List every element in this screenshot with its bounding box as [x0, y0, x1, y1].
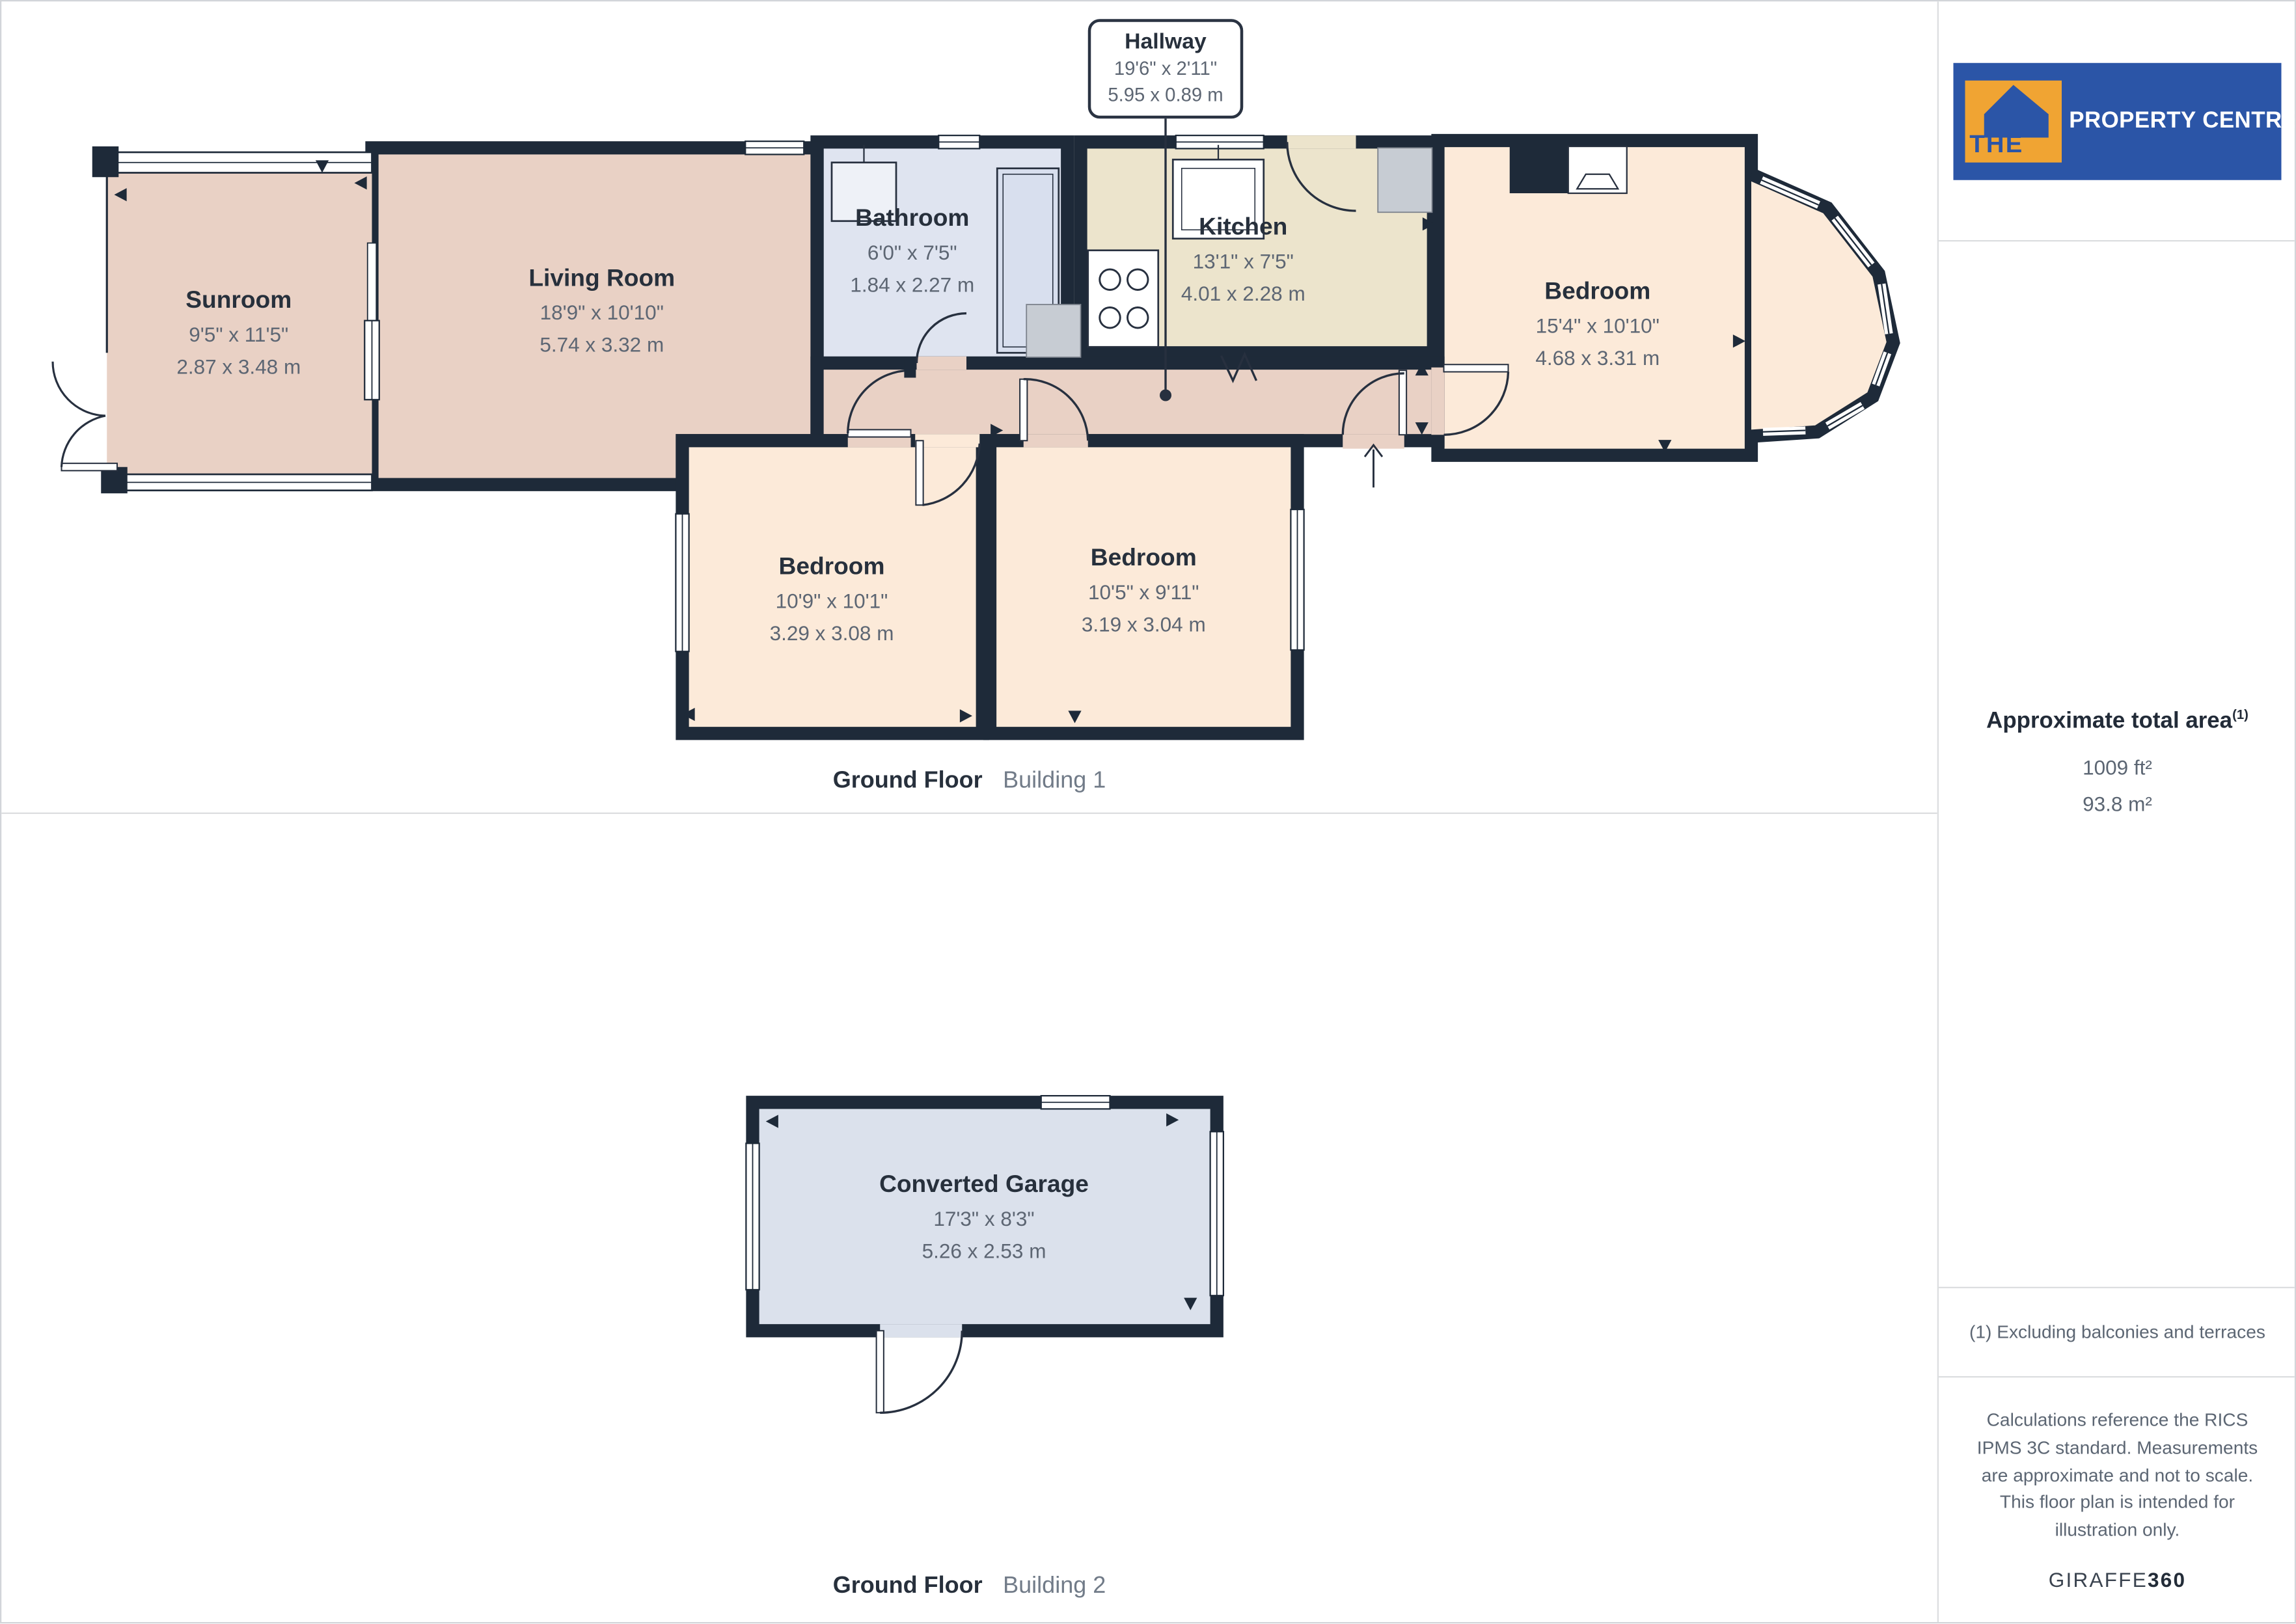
area-title-text: Approximate total area: [1986, 709, 2232, 733]
room-dim-metric: 4.68 x 3.31 m: [1535, 343, 1660, 375]
fridge-icon: [1378, 148, 1432, 212]
room-name: Sunroom: [176, 288, 301, 316]
brand-text: GIRAFFE: [2049, 1567, 2148, 1591]
total-area-cell: Approximate total area(1) 1009 ft² 93.8 …: [1939, 241, 2296, 1288]
hob-icon: [1088, 250, 1158, 347]
giraffe360-brand: GIRAFFE360: [1939, 1567, 2296, 1591]
disclaimer-cell: Calculations reference the RICS IPMS 3C …: [1939, 1377, 2296, 1591]
section-divider: [1, 813, 1937, 814]
room-dim-imperial: 17'3" x 8'3": [879, 1204, 1089, 1236]
area-title: Approximate total area(1): [1939, 707, 2296, 735]
room-name: Bathroom: [850, 206, 974, 234]
room-dim-imperial: 18'9" x 10'10": [528, 297, 675, 329]
caption-floor: Ground Floor: [833, 768, 983, 793]
room-name: Bedroom: [770, 554, 894, 582]
room-name: Kitchen: [1181, 214, 1305, 242]
room-label-bedroom-mid: Bedroom 10'5" x 9'11" 3.19 x 3.04 m: [1082, 545, 1206, 641]
hallway-callout-metric: 5.95 x 0.89 m: [1091, 81, 1240, 107]
area-value-ft: 1009 ft²: [1939, 750, 2296, 785]
floorplan-main-area: Hallway 19'6" x 2'11" 5.95 x 0.89 m Sunr…: [1, 1, 1937, 1622]
room-name: Bedroom: [1082, 545, 1206, 573]
caption-building1: Ground FloorBuilding 1: [1, 768, 1937, 795]
footnote-text: (1) Excluding balconies and terraces: [1969, 1322, 2265, 1343]
room-dim-imperial: 15'4" x 10'10": [1535, 311, 1660, 343]
room-dim-metric: 2.87 x 3.48 m: [176, 351, 301, 383]
chimney-breast: [1510, 141, 1568, 193]
disclaimer-text: Calculations reference the RICS IPMS 3C …: [1962, 1407, 2273, 1544]
logo-house-badge: THE: [1965, 80, 2062, 162]
room-dim-metric: 3.29 x 3.08 m: [770, 618, 894, 650]
footnote-cell: (1) Excluding balconies and terraces: [1939, 1288, 2296, 1377]
garage-door: [877, 1324, 963, 1413]
hallway-callout: Hallway 19'6" x 2'11" 5.95 x 0.89 m: [1088, 19, 1244, 118]
room-dim-metric: 5.74 x 3.32 m: [528, 329, 675, 361]
room-dim-imperial: 6'0" x 7'5": [850, 237, 974, 269]
hallway-callout-title: Hallway: [1091, 29, 1240, 54]
floorplan-page: Hallway 19'6" x 2'11" 5.95 x 0.89 m Sunr…: [0, 0, 2296, 1623]
room-dim-imperial: 10'5" x 9'11": [1082, 577, 1206, 609]
room-label-bedroom-left: Bedroom 10'9" x 10'1" 3.29 x 3.08 m: [770, 554, 894, 649]
hallway-callout-imperial: 19'6" x 2'11": [1091, 56, 1240, 81]
entrance-arrow-icon: [1365, 445, 1382, 487]
area-value-m: 93.8 m²: [1939, 785, 2296, 821]
room-label-kitchen: Kitchen 13'1" x 7'5" 4.01 x 2.28 m: [1181, 214, 1305, 310]
bay-window: [1751, 174, 1893, 437]
room-dim-metric: 3.19 x 3.04 m: [1082, 609, 1206, 641]
room-name: Living Room: [528, 265, 675, 293]
room-dim-imperial: 13'1" x 7'5": [1181, 247, 1305, 278]
property-centre-logo: THE PROPERTY CENTRE: [1954, 62, 2282, 180]
logo-the-text: THE: [1969, 129, 2023, 159]
room-name: Converted Garage: [879, 1172, 1089, 1200]
room-dim-metric: 5.26 x 2.53 m: [879, 1236, 1089, 1267]
logo-name-text: PROPERTY CENTRE: [2069, 107, 2296, 134]
cupboard-icon: [1026, 304, 1080, 357]
logo-cell: THE PROPERTY CENTRE: [1939, 1, 2296, 241]
caption-building2: Ground FloorBuilding 2: [1, 1574, 1937, 1601]
sidebar: THE PROPERTY CENTRE Approximate total ar…: [1937, 1, 2296, 1622]
room-dim-metric: 1.84 x 2.27 m: [850, 269, 974, 301]
room-label-converted-garage: Converted Garage 17'3" x 8'3" 5.26 x 2.5…: [879, 1172, 1089, 1267]
caption-floor: Ground Floor: [833, 1574, 983, 1599]
caption-building: Building 1: [1003, 768, 1106, 793]
room-dim-metric: 4.01 x 2.28 m: [1181, 278, 1305, 310]
caption-building: Building 2: [1003, 1574, 1106, 1599]
room-dim-imperial: 10'9" x 10'1": [770, 586, 894, 618]
room-label-bedroom-main: Bedroom 15'4" x 10'10" 4.68 x 3.31 m: [1535, 278, 1660, 374]
room-dim-imperial: 9'5" x 11'5": [176, 319, 301, 351]
room-label-bathroom: Bathroom 6'0" x 7'5" 1.84 x 2.27 m: [850, 206, 974, 301]
brand-suffix: 360: [2148, 1567, 2186, 1591]
room-label-living-room: Living Room 18'9" x 10'10" 5.74 x 3.32 m: [528, 265, 675, 361]
area-title-footnote-ref: (1): [2232, 707, 2248, 722]
room-label-sunroom: Sunroom 9'5" x 11'5" 2.87 x 3.48 m: [176, 288, 301, 383]
room-name: Bedroom: [1535, 278, 1660, 306]
